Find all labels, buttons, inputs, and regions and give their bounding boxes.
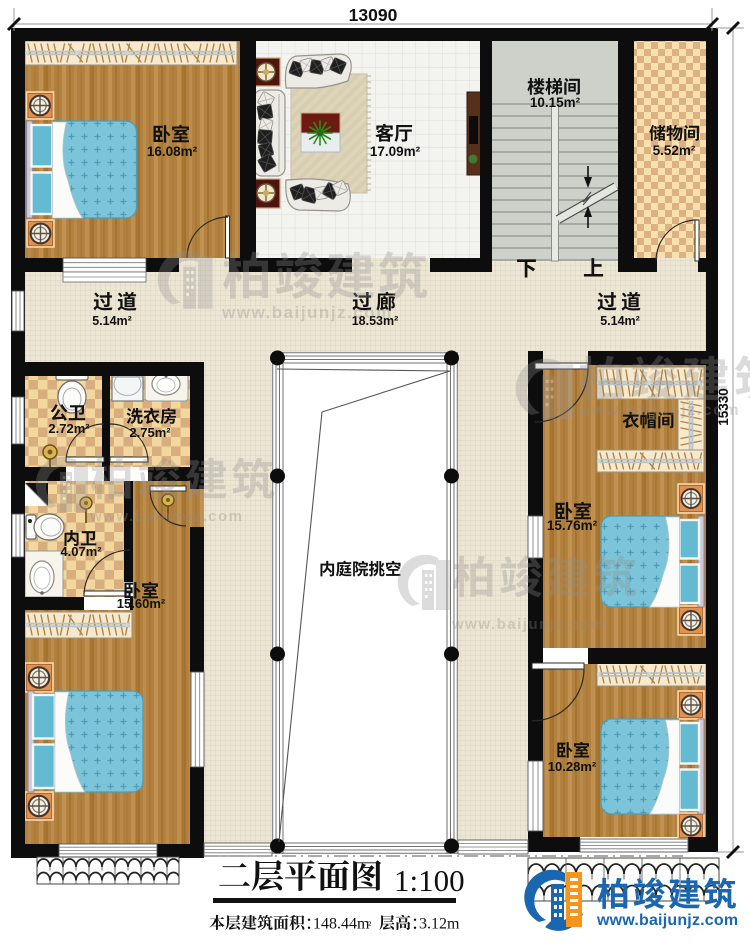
svg-text:15330: 15330 bbox=[716, 388, 731, 426]
svg-text:5.14m²: 5.14m² bbox=[92, 314, 132, 328]
svg-text:148.44m: 148.44m bbox=[313, 916, 370, 933]
svg-text:www.baijunjz.com: www.baijunjz.com bbox=[221, 303, 393, 322]
svg-text:1:100: 1:100 bbox=[394, 863, 465, 898]
svg-text:15.60m²: 15.60m² bbox=[117, 596, 166, 611]
svg-text:3.12m: 3.12m bbox=[419, 916, 460, 933]
svg-text:2.72m²: 2.72m² bbox=[48, 421, 90, 436]
svg-text:15.76m²: 15.76m² bbox=[547, 518, 598, 533]
svg-text:17.09m²: 17.09m² bbox=[370, 144, 421, 159]
svg-text:5.14m²: 5.14m² bbox=[600, 314, 640, 328]
svg-text:4.07m²: 4.07m² bbox=[60, 544, 102, 559]
svg-text:16.08m²: 16.08m² bbox=[147, 144, 198, 159]
svg-text:www.baijunjz.com: www.baijunjz.com bbox=[451, 616, 605, 633]
svg-text:10.28m²: 10.28m² bbox=[548, 759, 597, 774]
svg-text:10.15m²: 10.15m² bbox=[530, 95, 581, 110]
svg-text:www.baijunjz.com: www.baijunjz.com bbox=[596, 912, 738, 929]
svg-text:13090: 13090 bbox=[349, 5, 398, 25]
svg-text:2.75m²: 2.75m² bbox=[129, 425, 171, 440]
svg-text:5.52m²: 5.52m² bbox=[653, 143, 696, 158]
svg-text:www.baijunjz.com: www.baijunjz.com bbox=[89, 508, 243, 525]
